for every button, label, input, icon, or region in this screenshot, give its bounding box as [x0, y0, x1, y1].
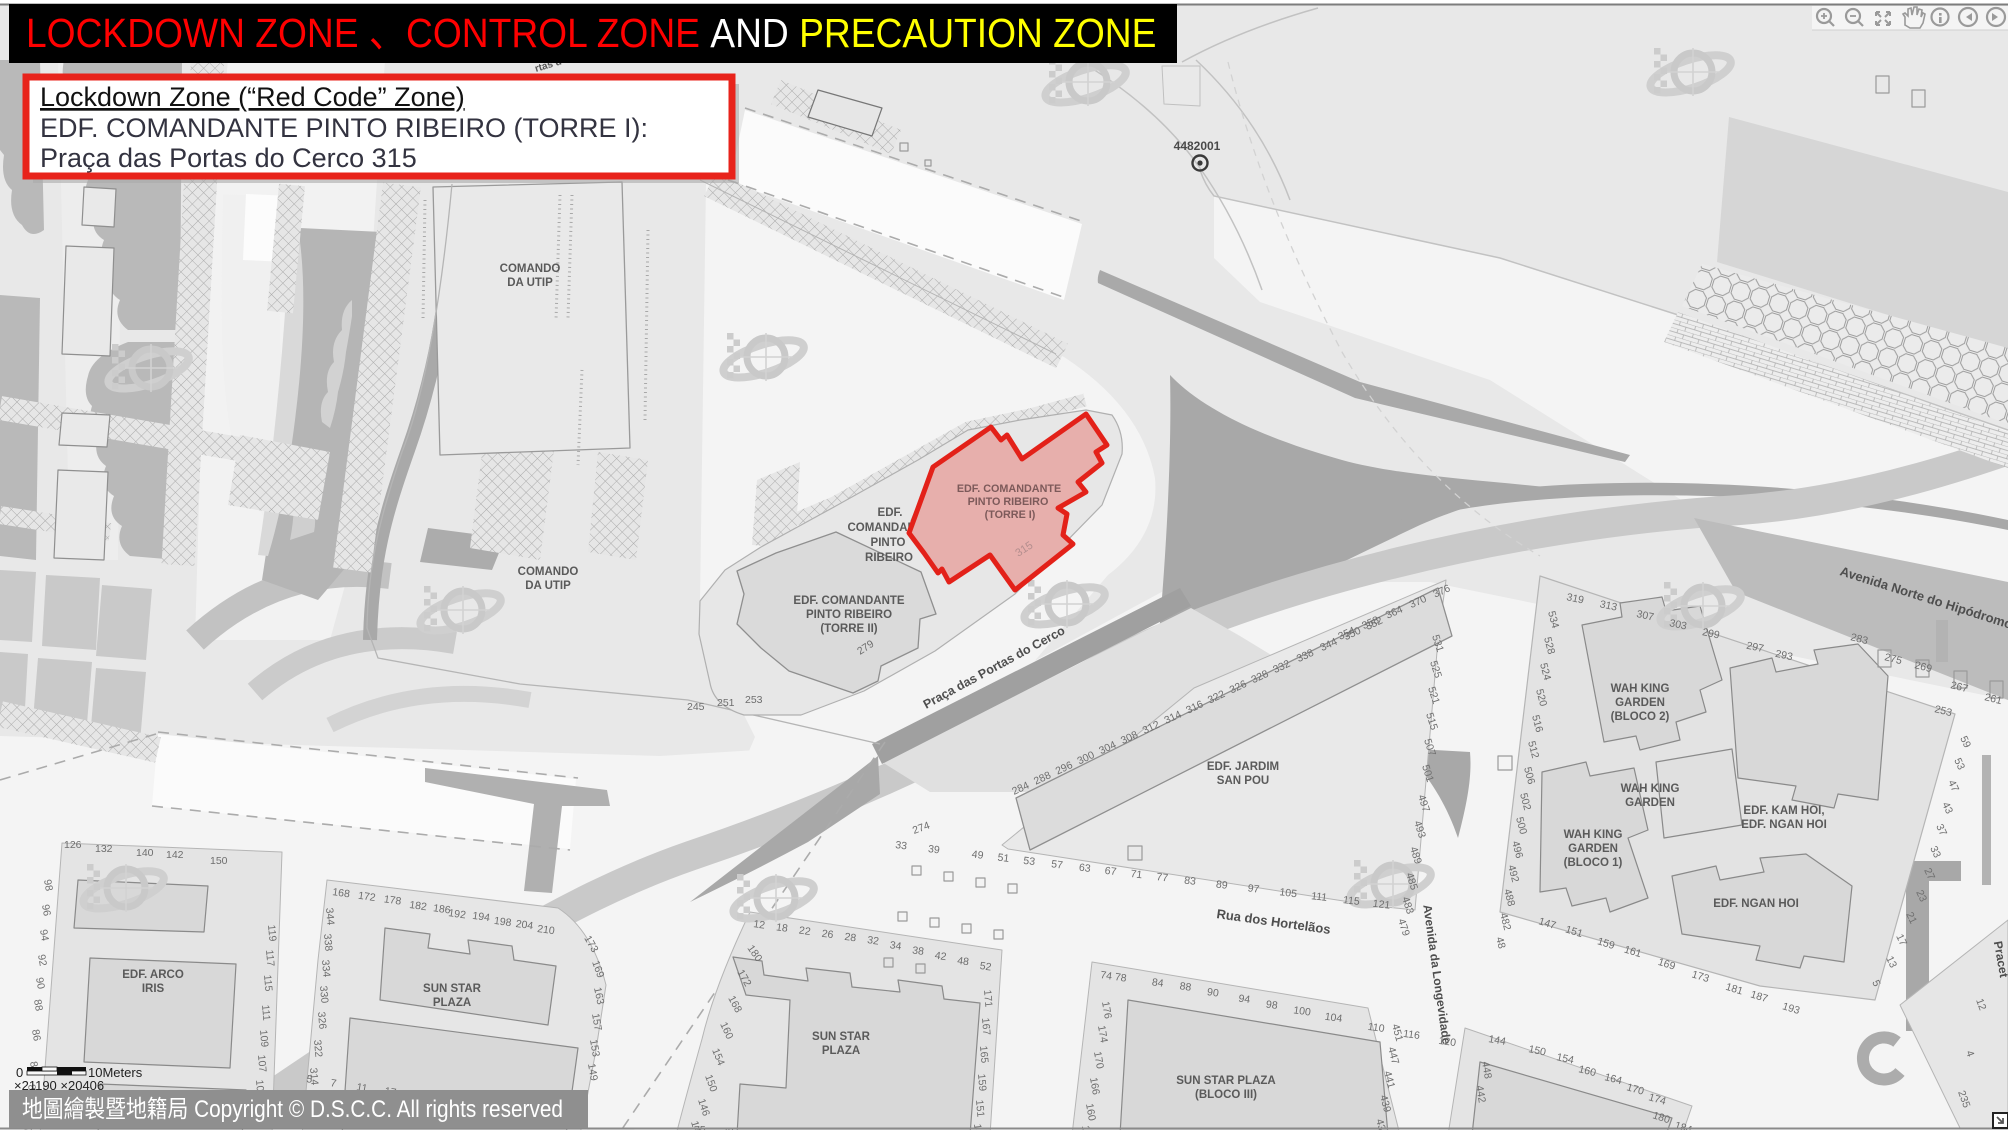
svg-text:168: 168 [332, 886, 351, 900]
svg-text:EDF. KAM HOI,: EDF. KAM HOI, [1743, 805, 1824, 817]
svg-text:107: 107 [255, 1054, 268, 1073]
svg-text:194: 194 [472, 910, 491, 924]
svg-text:EDF. JARDIM: EDF. JARDIM [1207, 761, 1279, 773]
svg-text:SUN STAR PLAZA: SUN STAR PLAZA [1176, 1075, 1275, 1087]
svg-text:326: 326 [315, 1011, 328, 1030]
svg-text:109: 109 [257, 1029, 270, 1048]
svg-text:WAH KING: WAH KING [1621, 783, 1680, 795]
svg-text:EDF. COMANDANTE: EDF. COMANDANTE [793, 595, 904, 607]
svg-text:22: 22 [798, 924, 811, 938]
svg-text:(TORRE I): (TORRE I) [985, 509, 1036, 521]
svg-text:39: 39 [927, 843, 940, 856]
svg-text:115: 115 [1342, 894, 1360, 908]
svg-text:110: 110 [1367, 1021, 1385, 1035]
svg-text:33: 33 [895, 839, 908, 852]
svg-text:PINTO RIBEIRO: PINTO RIBEIRO [968, 496, 1049, 508]
svg-text:165: 165 [977, 1045, 990, 1064]
svg-text:EDF. NGAN HOI: EDF. NGAN HOI [1741, 819, 1827, 831]
svg-text:77: 77 [1156, 871, 1169, 884]
svg-text:48: 48 [956, 955, 969, 969]
svg-text:38: 38 [911, 944, 924, 958]
svg-text:90: 90 [33, 976, 47, 990]
svg-text:PLAZA: PLAZA [433, 997, 471, 1009]
svg-text:EDF.: EDF. [878, 507, 903, 519]
svg-text:94: 94 [37, 928, 51, 942]
svg-text:WAH KING: WAH KING [1564, 829, 1623, 841]
svg-text:SUN STAR: SUN STAR [812, 1031, 871, 1043]
svg-text:RIBEIRO: RIBEIRO [865, 552, 913, 564]
svg-text:245: 245 [687, 701, 705, 713]
svg-text:140: 140 [136, 847, 154, 859]
svg-text:4482001: 4482001 [1174, 139, 1221, 153]
svg-text:PINTO RIBEIRO: PINTO RIBEIRO [806, 609, 892, 621]
svg-text:(BLOCO III): (BLOCO III) [1195, 1089, 1257, 1101]
svg-text:Praça das Portas do Cerco 315: Praça das Portas do Cerco 315 [40, 143, 417, 173]
svg-text:86: 86 [29, 1028, 43, 1042]
svg-text:地圖繪製暨地籍局 Copyright © D.S.C.C.: 地圖繪製暨地籍局 Copyright © D.S.C.C. All rights… [22, 1096, 563, 1123]
svg-text:GARDEN: GARDEN [1615, 697, 1665, 709]
svg-text:94: 94 [1238, 993, 1251, 1007]
svg-text:159: 159 [975, 1073, 988, 1092]
svg-text:117: 117 [263, 949, 276, 967]
svg-text:132: 132 [95, 843, 113, 855]
svg-text:PLAZA: PLAZA [822, 1045, 860, 1057]
svg-text:121: 121 [1372, 898, 1391, 912]
svg-text:DA UTIP: DA UTIP [507, 277, 553, 289]
svg-text:322: 322 [311, 1039, 324, 1058]
svg-text:EDF. COMANDANTE PINTO RIBEIRO: EDF. COMANDANTE PINTO RIBEIRO (TORRE I): [40, 113, 648, 143]
svg-text:51: 51 [997, 852, 1010, 865]
svg-text:LOCKDOWN ZONE 、CONTROL ZONE AN: LOCKDOWN ZONE 、CONTROL ZONE AND PRECAUTI… [26, 11, 1156, 56]
svg-text:83: 83 [1183, 875, 1196, 888]
svg-text:71: 71 [1130, 868, 1143, 881]
svg-text:Lockdown Zone (“Red Code” Zone: Lockdown Zone (“Red Code” Zone) [40, 82, 465, 112]
svg-text:32: 32 [866, 934, 879, 948]
svg-text:119: 119 [265, 924, 278, 942]
svg-text:DA UTIP: DA UTIP [525, 580, 571, 592]
svg-text:92: 92 [35, 953, 49, 967]
svg-text:251: 251 [717, 697, 735, 709]
svg-text:EDF. COMANDANTE: EDF. COMANDANTE [957, 483, 1061, 495]
svg-text:98: 98 [1265, 998, 1278, 1012]
svg-text:178: 178 [383, 893, 402, 907]
svg-text:34: 34 [889, 939, 902, 953]
svg-text:100: 100 [1293, 1004, 1312, 1018]
svg-text:120: 120 [1438, 1035, 1457, 1049]
svg-text:GARDEN: GARDEN [1625, 797, 1675, 809]
svg-text:(BLOCO 1): (BLOCO 1) [1564, 857, 1623, 869]
svg-text:18: 18 [775, 921, 788, 935]
svg-text:WAH KING: WAH KING [1611, 683, 1670, 695]
svg-text:150: 150 [210, 855, 228, 867]
svg-text:116: 116 [1402, 1028, 1420, 1042]
svg-text:330: 330 [317, 985, 330, 1004]
svg-text:96: 96 [39, 903, 53, 917]
svg-text:89: 89 [1215, 878, 1228, 891]
svg-text:(BLOCO 2): (BLOCO 2) [1611, 711, 1670, 723]
svg-text:26: 26 [821, 928, 834, 942]
svg-text:COMANDO: COMANDO [518, 566, 579, 578]
svg-text:28: 28 [844, 931, 857, 945]
svg-text:167: 167 [979, 1017, 992, 1036]
svg-text:151: 151 [973, 1099, 986, 1118]
svg-text:334: 334 [319, 959, 332, 978]
svg-text:SUN STAR: SUN STAR [423, 983, 482, 995]
svg-text:253: 253 [745, 694, 763, 706]
svg-text:12: 12 [753, 918, 766, 932]
svg-text:63: 63 [1078, 862, 1091, 875]
svg-text:IRIS: IRIS [142, 983, 165, 995]
svg-text:88: 88 [31, 998, 45, 1012]
svg-text:105: 105 [1279, 886, 1298, 900]
svg-text:(TORRE II): (TORRE II) [820, 623, 877, 635]
svg-text:EDF. ARCO: EDF. ARCO [122, 969, 184, 981]
svg-text:111: 111 [1311, 890, 1328, 904]
svg-text:53: 53 [1023, 855, 1036, 868]
svg-text:88: 88 [1179, 980, 1192, 994]
svg-text:182: 182 [409, 899, 428, 913]
svg-text:84: 84 [1151, 976, 1164, 990]
svg-text:PINTO: PINTO [871, 537, 906, 549]
svg-text:142: 142 [166, 849, 184, 861]
svg-text:98: 98 [41, 878, 55, 892]
svg-text:42: 42 [934, 950, 947, 964]
svg-text:338: 338 [321, 933, 334, 952]
svg-text:52: 52 [979, 960, 992, 974]
svg-text:210: 210 [536, 923, 555, 937]
svg-text:EDF. NGAN HOI: EDF. NGAN HOI [1713, 898, 1799, 910]
svg-text:90: 90 [1206, 986, 1219, 1000]
svg-text:171: 171 [981, 989, 994, 1008]
svg-text:344: 344 [323, 907, 336, 926]
svg-text:104: 104 [1324, 1011, 1343, 1025]
svg-text:57: 57 [1050, 858, 1063, 871]
svg-text:97: 97 [1247, 882, 1260, 895]
svg-text:126: 126 [64, 839, 82, 851]
svg-text:198: 198 [493, 915, 512, 929]
svg-text:49: 49 [971, 848, 984, 861]
svg-text:GARDEN: GARDEN [1568, 843, 1618, 855]
svg-text:172: 172 [357, 890, 376, 904]
svg-text:115: 115 [261, 974, 274, 992]
svg-text:COMANDO: COMANDO [500, 263, 561, 275]
svg-text:204: 204 [515, 918, 534, 932]
svg-text:67: 67 [1104, 865, 1117, 878]
svg-text:SAN POU: SAN POU [1217, 775, 1269, 787]
svg-text:192: 192 [448, 907, 467, 921]
svg-text:111: 111 [259, 1004, 272, 1021]
